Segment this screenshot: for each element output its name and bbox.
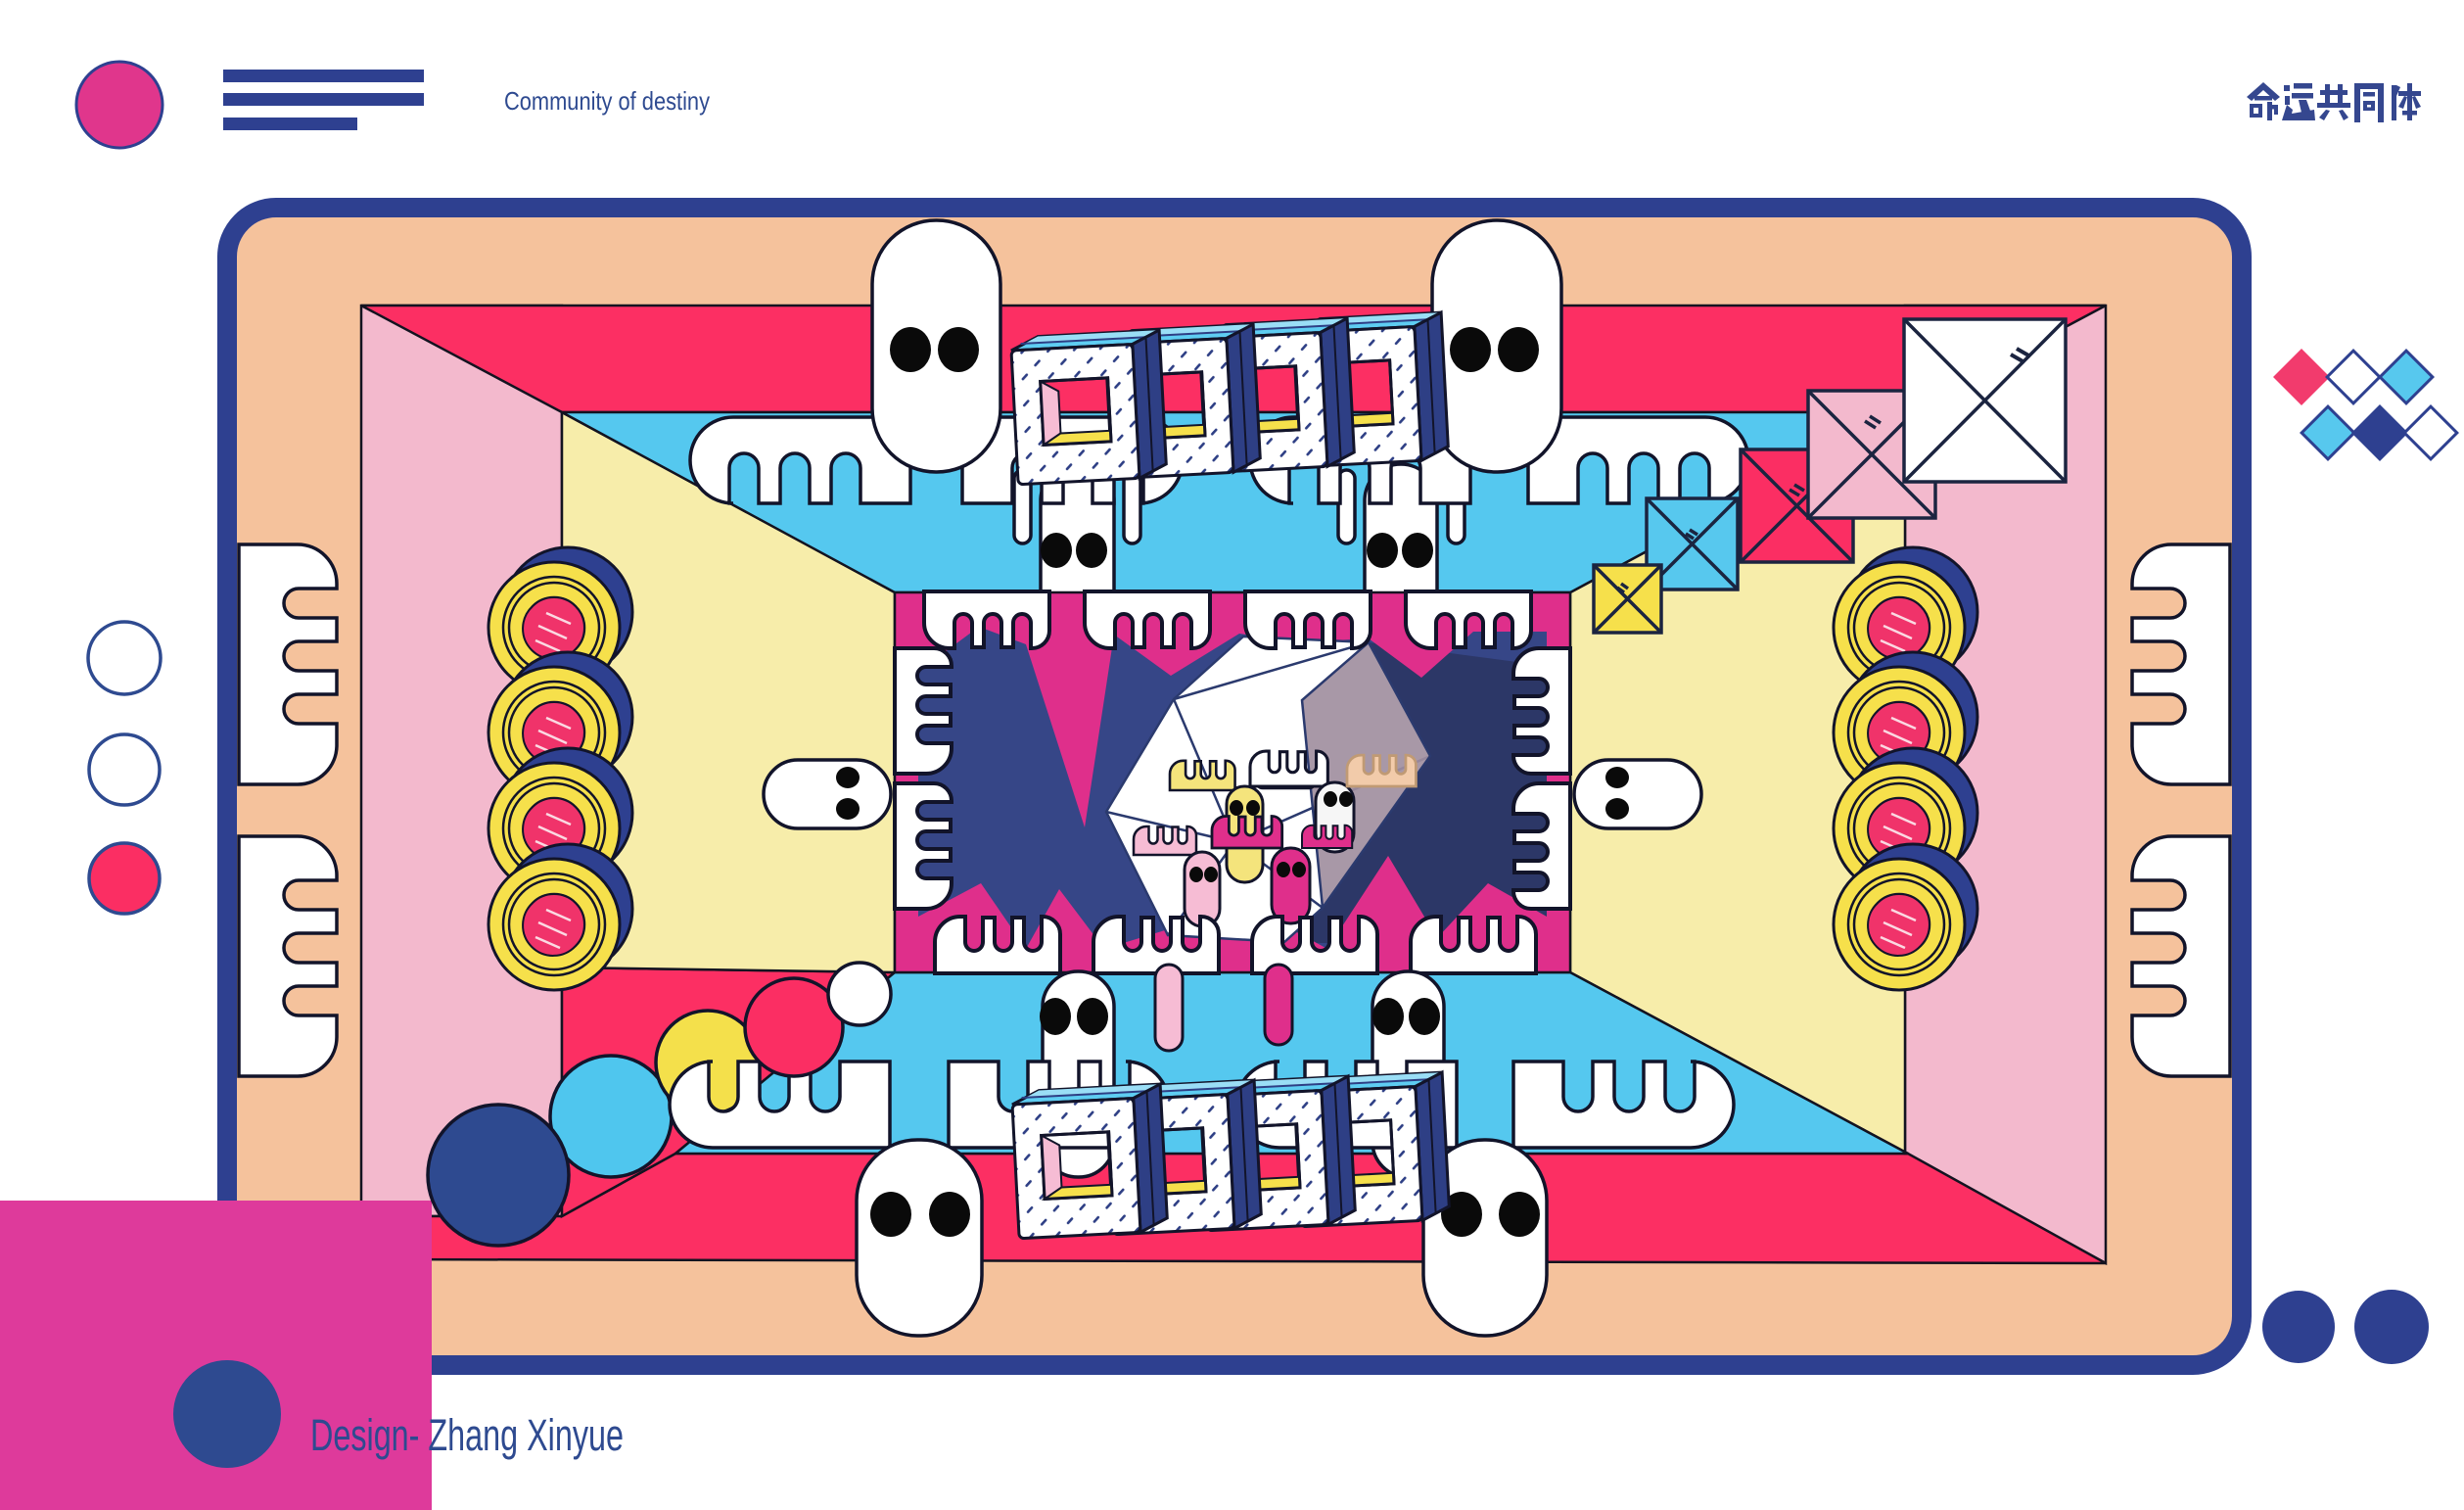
svg-text:Design- Zhang Xinyue: Design- Zhang Xinyue	[310, 1410, 624, 1460]
svg-text:Community of destiny: Community of destiny	[504, 86, 710, 116]
